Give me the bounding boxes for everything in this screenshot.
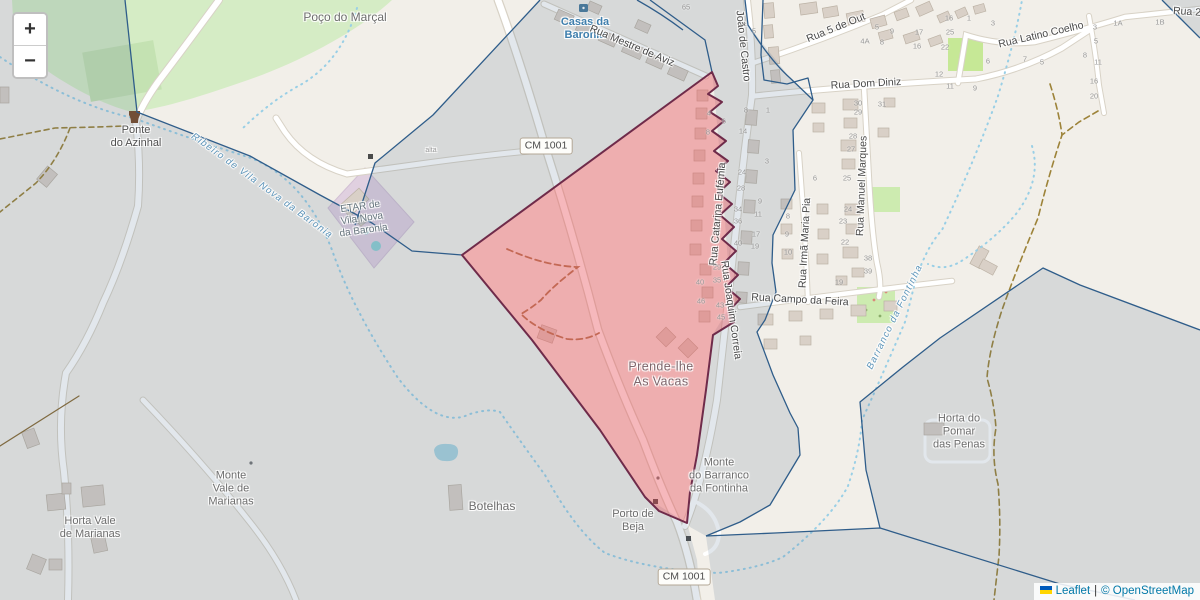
attribution: Leaflet|© OpenStreetMap xyxy=(1034,583,1200,600)
ukraine-flag-icon xyxy=(1040,586,1052,594)
zoom-out-button[interactable]: − xyxy=(14,46,46,77)
leaflet-link[interactable]: Leaflet xyxy=(1056,585,1091,597)
map-canvas[interactable]: + − Leaflet|© OpenStreetMap Poço do Març… xyxy=(0,0,1200,600)
attribution-separator: | xyxy=(1094,585,1097,597)
village-green-2 xyxy=(872,187,900,212)
zoom-in-button[interactable]: + xyxy=(14,14,46,46)
zoom-control: + − xyxy=(12,12,48,79)
gate-icon xyxy=(368,154,373,159)
base-map-svg xyxy=(0,0,1200,600)
osm-link[interactable]: © OpenStreetMap xyxy=(1101,585,1194,597)
